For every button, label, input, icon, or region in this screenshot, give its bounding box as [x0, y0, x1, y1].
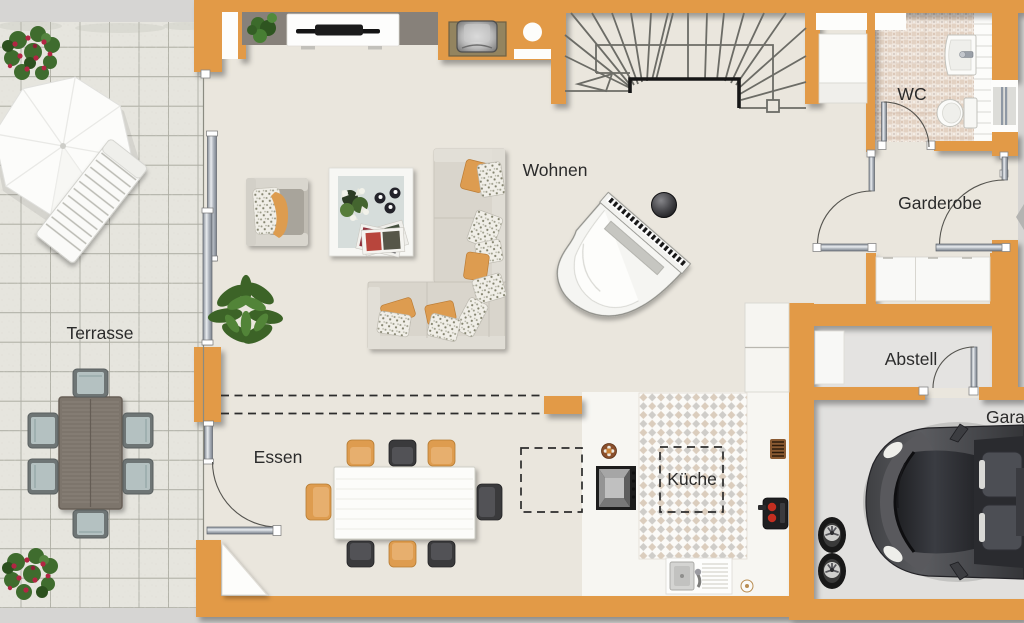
svg-text:Abstell: Abstell [885, 349, 938, 369]
svg-text:Küche: Küche [667, 469, 717, 489]
svg-text:Terrasse: Terrasse [66, 323, 133, 343]
svg-text:Essen: Essen [254, 447, 303, 467]
svg-text:Garage: Garage [986, 407, 1024, 427]
svg-text:WC: WC [897, 84, 926, 104]
svg-text:Garderobe: Garderobe [898, 193, 982, 213]
svg-text:Wohnen: Wohnen [523, 160, 588, 180]
